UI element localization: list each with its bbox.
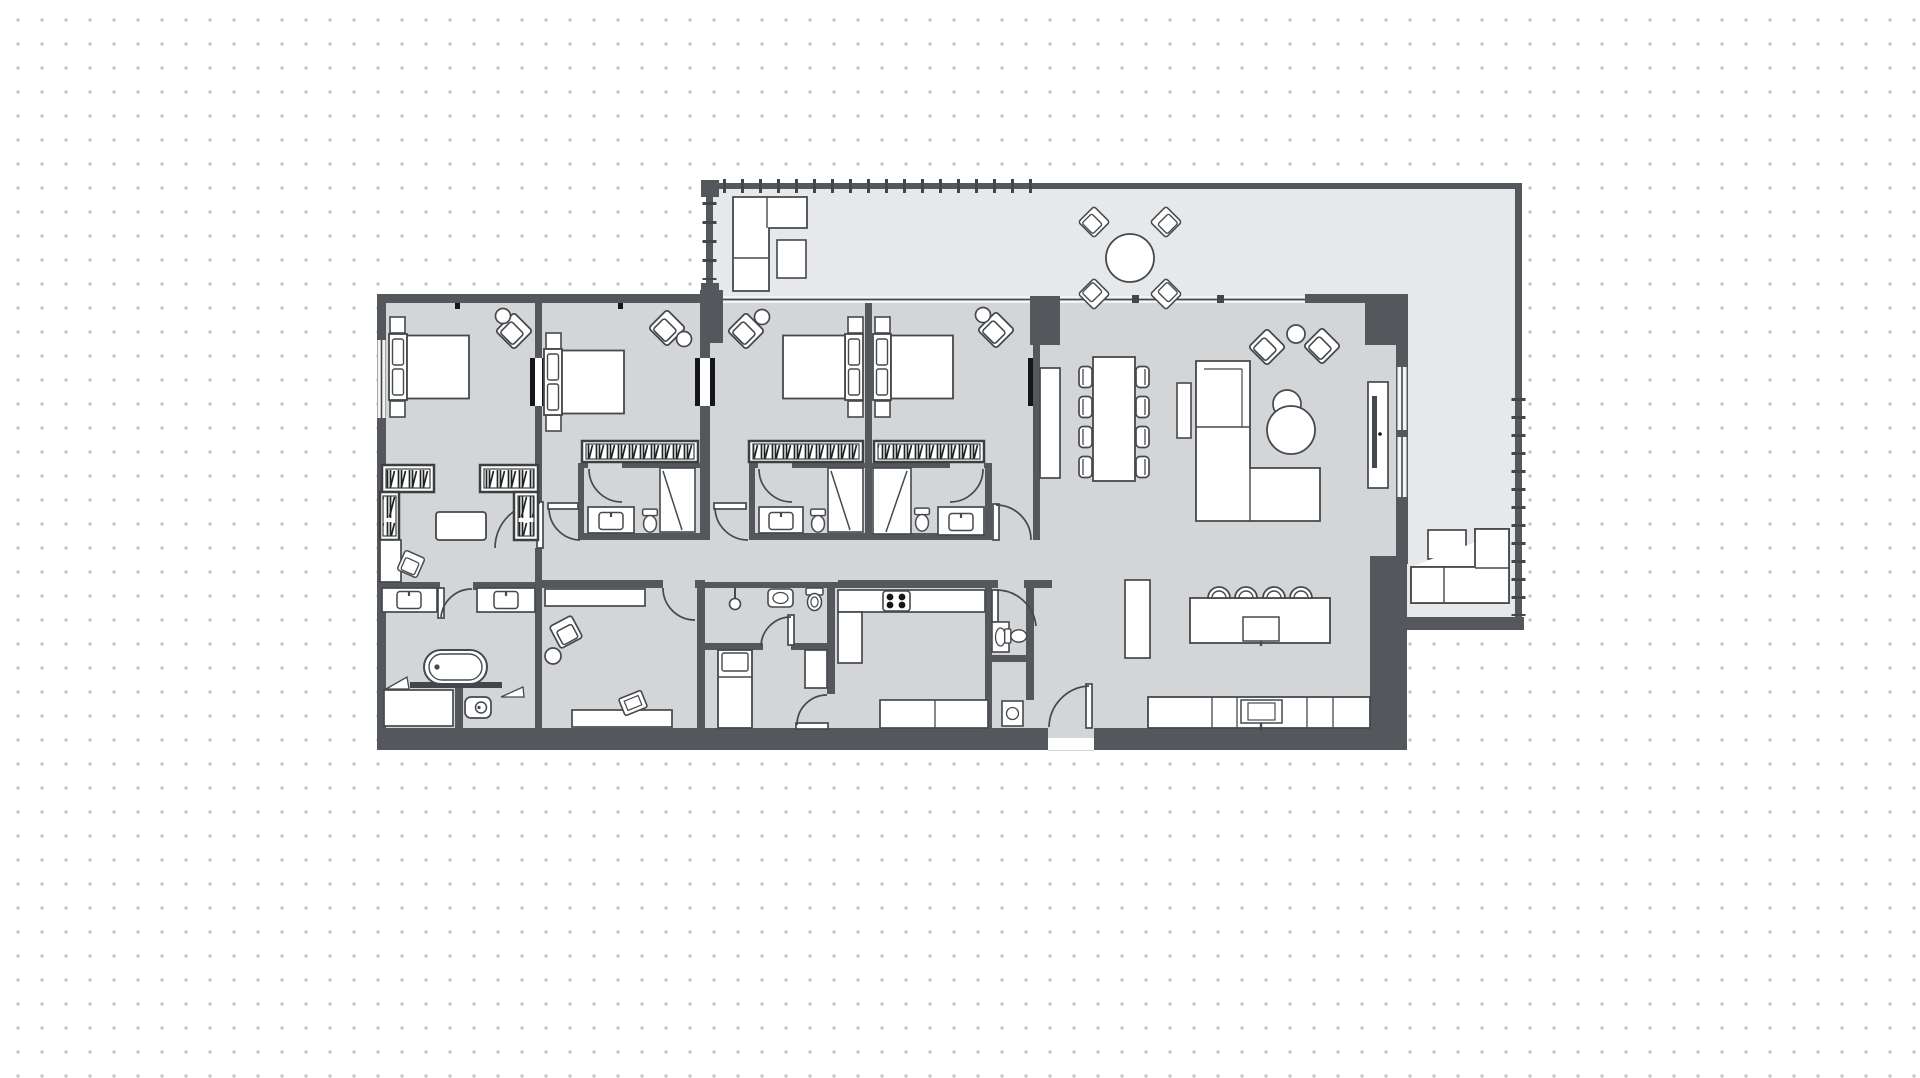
hob-icon <box>883 591 910 611</box>
counter-top <box>838 590 985 612</box>
tv-icon <box>1372 396 1377 468</box>
bathtub-icon <box>424 650 487 684</box>
wall-kitchen-top <box>838 580 985 588</box>
shower-tray <box>384 690 453 726</box>
side-table-icon <box>545 648 561 664</box>
toilet-icon <box>806 588 823 611</box>
wall-masterbath-right <box>535 582 542 728</box>
terrace-post <box>701 180 719 197</box>
ottoman-icon <box>436 512 486 540</box>
counter-bottom <box>1148 697 1370 731</box>
laundry-storage <box>1002 701 1023 726</box>
dining-table <box>1093 357 1135 481</box>
wall-powder-right <box>1026 582 1034 700</box>
toilet-side-icon <box>465 697 491 718</box>
desk-icon <box>545 589 645 606</box>
floor-plan-drawing <box>0 0 1920 1078</box>
side-table-icon <box>677 332 692 347</box>
wall-kitchen-right-thick <box>1370 556 1407 750</box>
wall-powder-bottom <box>985 655 1034 662</box>
side-table-icon <box>496 309 511 324</box>
wall-outer-top-left <box>377 294 712 303</box>
tv-console <box>1368 382 1388 488</box>
column-post <box>1365 296 1396 345</box>
counter-leg <box>838 612 862 663</box>
side-table-icon <box>976 308 991 323</box>
wall-maid-top <box>705 582 838 588</box>
wall-bed2-bed3 <box>700 303 710 540</box>
sofa-side-table <box>1177 383 1191 438</box>
terrace-side-table <box>777 240 806 278</box>
maid-bed <box>718 650 752 728</box>
round-table <box>1106 234 1154 282</box>
tall-cabinet <box>1125 580 1150 658</box>
wall-study-right <box>697 580 705 732</box>
round-table-icon <box>1287 325 1305 343</box>
wall-outer-bottom <box>377 728 1404 750</box>
side-table-icon <box>755 310 770 325</box>
counter-bottom-left <box>880 700 988 728</box>
wardrobe-cabinet <box>805 650 827 688</box>
sideboard-icon <box>1040 368 1060 478</box>
wall-bed4-living <box>1033 303 1040 540</box>
shower-head-icon <box>730 599 741 610</box>
toilet-icon <box>1005 629 1027 643</box>
floor-plan-canvas <box>0 0 1920 1078</box>
island-sink <box>1243 617 1279 641</box>
console-icon <box>572 710 672 727</box>
cabinet-icon <box>380 540 401 582</box>
coffee-table-large <box>1267 406 1315 454</box>
wall-bed3-bed4 <box>865 303 872 540</box>
